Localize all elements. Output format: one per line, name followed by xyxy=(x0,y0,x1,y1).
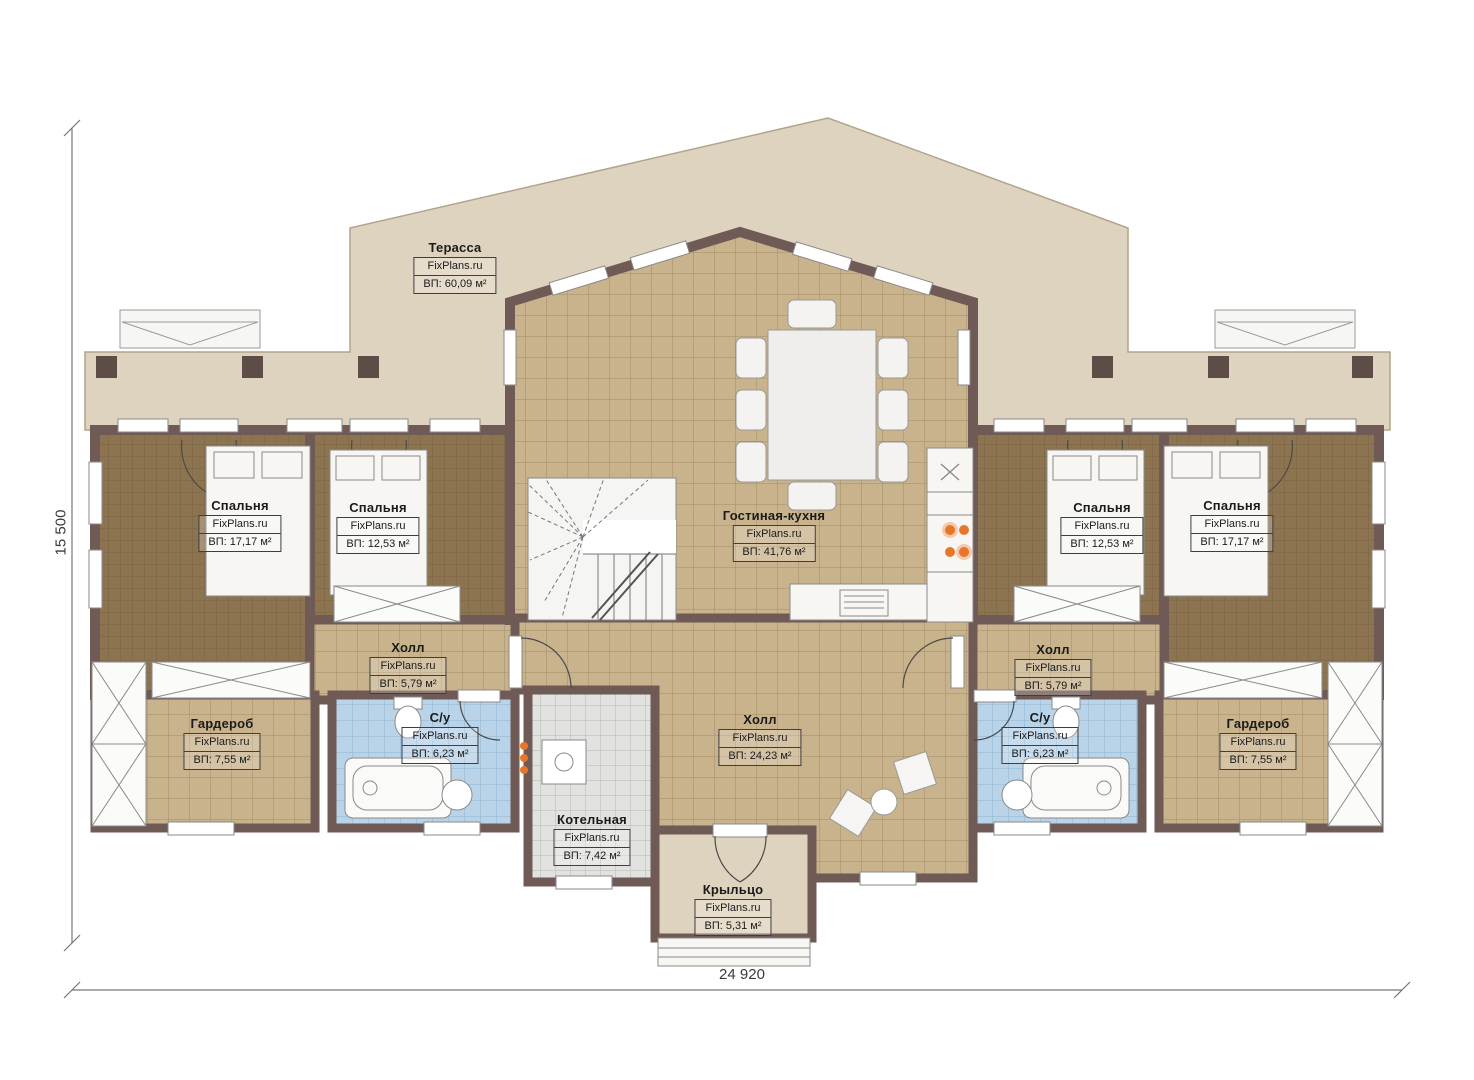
room-label-bathroom-left: С/у FixPlans.ru ВП: 6,23 м² xyxy=(401,710,478,764)
room-name: Спальня xyxy=(198,498,281,513)
room-name: Гостиная-кухня xyxy=(723,508,825,523)
brand-watermark: FixPlans.ru xyxy=(370,658,445,676)
room-area: ВП: 24,23 м² xyxy=(719,748,800,765)
room-label-living-kitchen: Гостиная-кухня FixPlans.ru ВП: 41,76 м² xyxy=(723,508,825,562)
brand-watermark: FixPlans.ru xyxy=(337,518,418,536)
room-name: Крыльцо xyxy=(694,882,771,897)
brand-watermark: FixPlans.ru xyxy=(184,734,259,752)
room-label-terrace: Терасса FixPlans.ru ВП: 60,09 м² xyxy=(413,240,496,294)
boiler-unit xyxy=(542,740,586,784)
room-area: ВП: 5,31 м² xyxy=(695,918,770,935)
room-label-bedroom-right-outer: Спальня FixPlans.ru ВП: 17,17 м² xyxy=(1190,498,1273,552)
room-area: ВП: 5,79 м² xyxy=(1015,678,1090,695)
room-area: ВП: 5,79 м² xyxy=(370,676,445,693)
room-area: ВП: 17,17 м² xyxy=(199,534,280,551)
brand-watermark: FixPlans.ru xyxy=(1015,660,1090,678)
room-area: ВП: 6,23 м² xyxy=(1002,746,1077,763)
brand-watermark: FixPlans.ru xyxy=(199,516,280,534)
brand-watermark: FixPlans.ru xyxy=(719,730,800,748)
room-area: ВП: 60,09 м² xyxy=(414,276,495,293)
room-name: Холл xyxy=(1014,642,1091,657)
room-name: Холл xyxy=(369,640,446,655)
brand-watermark: FixPlans.ru xyxy=(402,728,477,746)
room-label-bedroom-right-inner: Спальня FixPlans.ru ВП: 12,53 м² xyxy=(1060,500,1143,554)
room-label-hall-center: Холл FixPlans.ru ВП: 24,23 м² xyxy=(718,712,801,766)
brand-watermark: FixPlans.ru xyxy=(695,900,770,918)
room-name: Терасса xyxy=(413,240,496,255)
room-area: ВП: 12,53 м² xyxy=(1061,536,1142,553)
room-area: ВП: 7,42 м² xyxy=(554,848,629,865)
room-area: ВП: 12,53 м² xyxy=(337,536,418,553)
room-name: С/у xyxy=(401,710,478,725)
room-label-wardrobe-left: Гардероб FixPlans.ru ВП: 7,55 м² xyxy=(183,716,260,770)
room-label-bathroom-right: С/у FixPlans.ru ВП: 6,23 м² xyxy=(1001,710,1078,764)
brand-watermark: FixPlans.ru xyxy=(1061,518,1142,536)
room-name: Гардероб xyxy=(183,716,260,731)
room-name: Спальня xyxy=(1060,500,1143,515)
room-name: Гардероб xyxy=(1219,716,1296,731)
floor-plan-page: { "brand": "FixPlans.ru", "dimensions": … xyxy=(0,0,1474,1080)
room-area: ВП: 41,76 м² xyxy=(733,544,814,561)
brand-watermark: FixPlans.ru xyxy=(414,258,495,276)
porch-steps xyxy=(658,938,810,966)
room-name: С/у xyxy=(1001,710,1078,725)
room-area: ВП: 7,55 м² xyxy=(184,752,259,769)
awning-right xyxy=(1215,310,1355,348)
room-label-wardrobe-right: Гардероб FixPlans.ru ВП: 7,55 м² xyxy=(1219,716,1296,770)
brand-watermark: FixPlans.ru xyxy=(1191,516,1272,534)
room-label-bedroom-left-outer: Спальня FixPlans.ru ВП: 17,17 м² xyxy=(198,498,281,552)
brand-watermark: FixPlans.ru xyxy=(733,526,814,544)
room-label-bedroom-left-inner: Спальня FixPlans.ru ВП: 12,53 м² xyxy=(336,500,419,554)
brand-watermark: FixPlans.ru xyxy=(1220,734,1295,752)
room-name: Котельная xyxy=(553,812,630,827)
room-label-porch: Крыльцо FixPlans.ru ВП: 5,31 м² xyxy=(694,882,771,936)
room-name: Холл xyxy=(718,712,801,727)
brand-watermark: FixPlans.ru xyxy=(554,830,629,848)
room-name: Спальня xyxy=(1190,498,1273,513)
dimension-horizontal: 24 920 xyxy=(719,966,765,983)
dining-table xyxy=(768,330,876,480)
dimension-vertical: 15 500 xyxy=(53,498,70,568)
room-label-hall-right: Холл FixPlans.ru ВП: 5,79 м² xyxy=(1014,642,1091,696)
brand-watermark: FixPlans.ru xyxy=(1002,728,1077,746)
radiator-dots xyxy=(520,742,528,774)
room-area: ВП: 17,17 м² xyxy=(1191,534,1272,551)
room-area: ВП: 6,23 м² xyxy=(402,746,477,763)
room-name: Спальня xyxy=(336,500,419,515)
room-label-hall-left: Холл FixPlans.ru ВП: 5,79 м² xyxy=(369,640,446,694)
staircase xyxy=(528,478,676,620)
room-area: ВП: 7,55 м² xyxy=(1220,752,1295,769)
awning-left xyxy=(120,310,260,348)
room-label-boiler: Котельная FixPlans.ru ВП: 7,42 м² xyxy=(553,812,630,866)
